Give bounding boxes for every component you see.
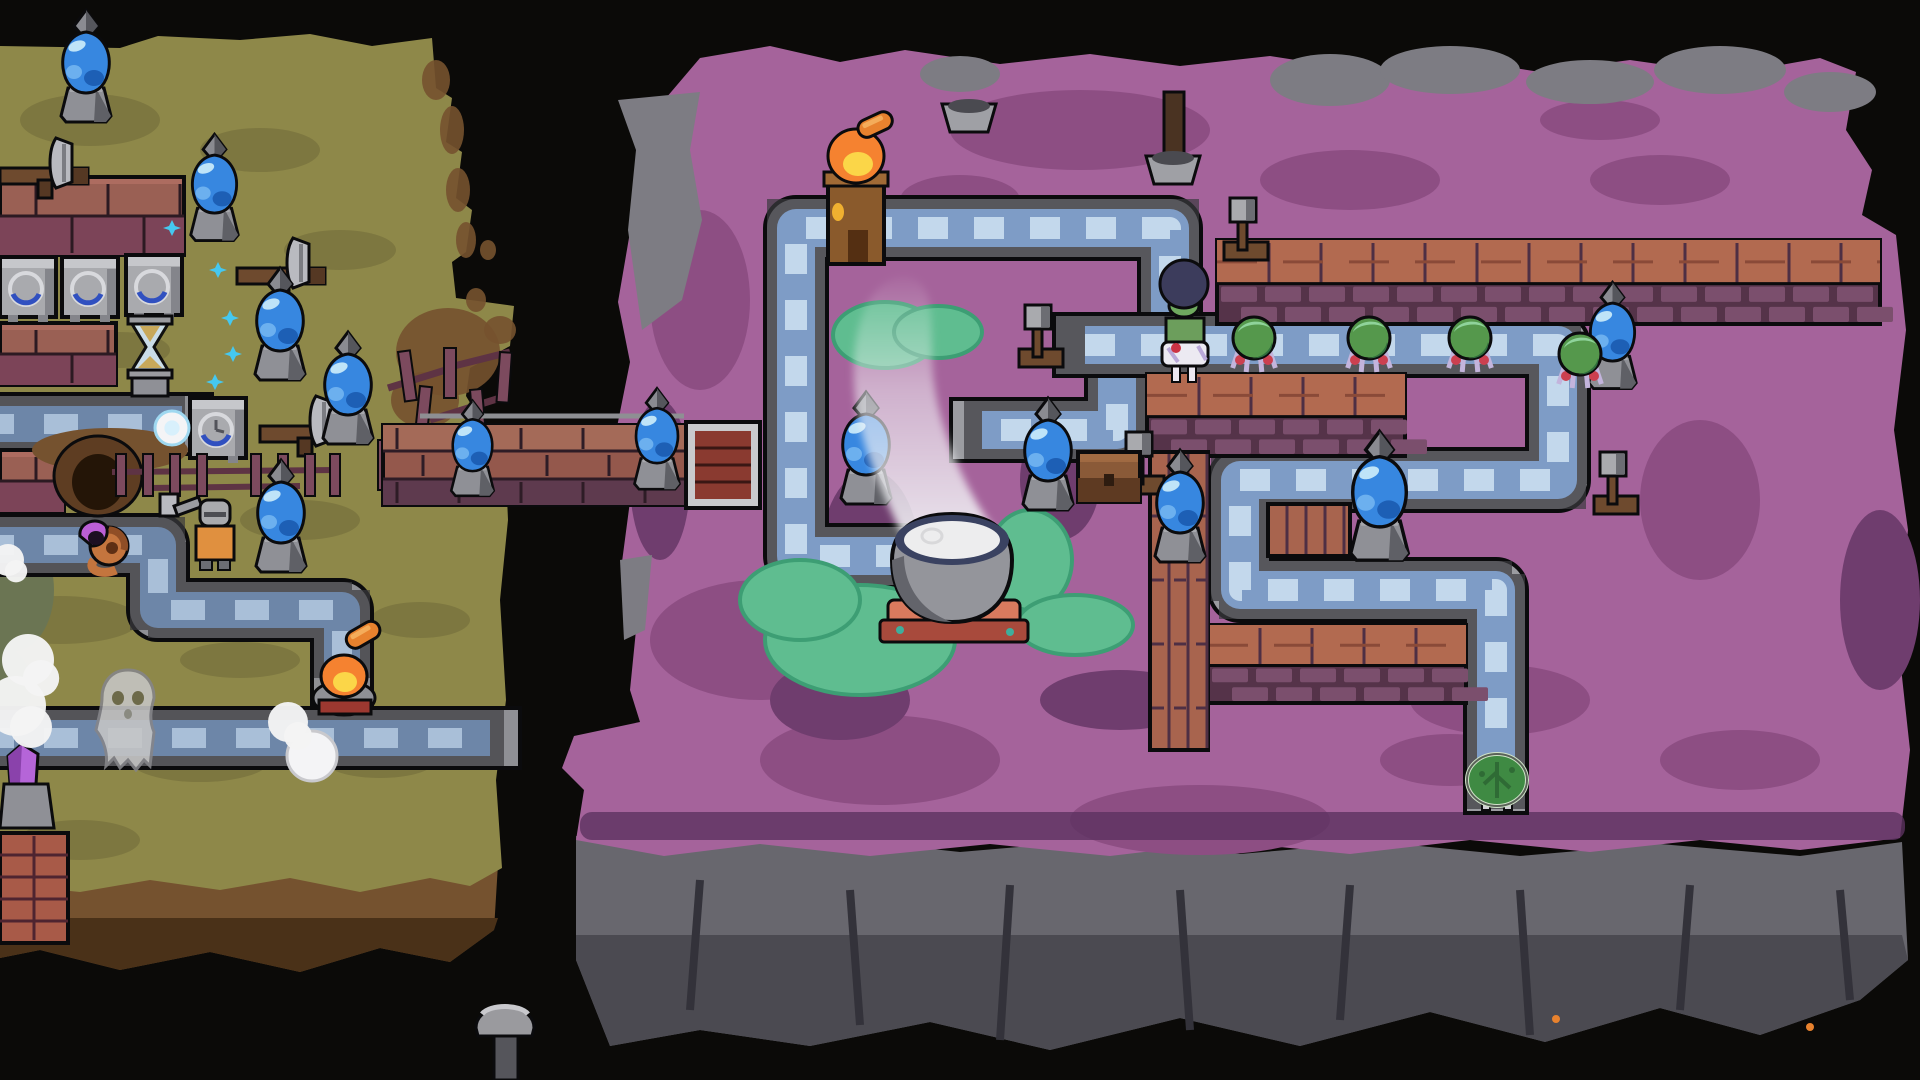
ember-dot xyxy=(1552,1015,1560,1023)
machine-generator[interactable] xyxy=(0,257,56,322)
wood-wall[interactable] xyxy=(1268,504,1350,556)
splash-orb xyxy=(155,411,189,445)
crystal-tower[interactable] xyxy=(61,10,111,122)
wood-wall[interactable] xyxy=(1208,625,1488,703)
mushroom-prop xyxy=(476,1007,534,1080)
game-canvas[interactable] xyxy=(0,0,1920,1080)
basin-post[interactable] xyxy=(942,99,996,132)
wood-wall[interactable] xyxy=(1217,240,1893,324)
enemy-witch[interactable] xyxy=(1160,260,1208,382)
supply-chest[interactable] xyxy=(1078,452,1140,502)
bridge[interactable] xyxy=(383,416,760,508)
ember-dot xyxy=(1806,1023,1814,1031)
wood-wall[interactable] xyxy=(0,177,184,255)
wood-wall[interactable] xyxy=(0,323,116,385)
game-viewport[interactable] xyxy=(0,0,1920,1080)
machine-generator[interactable] xyxy=(126,255,182,320)
bridge-gate xyxy=(686,422,760,508)
machine-generator[interactable] xyxy=(62,257,118,322)
torch-tower[interactable] xyxy=(824,129,888,264)
